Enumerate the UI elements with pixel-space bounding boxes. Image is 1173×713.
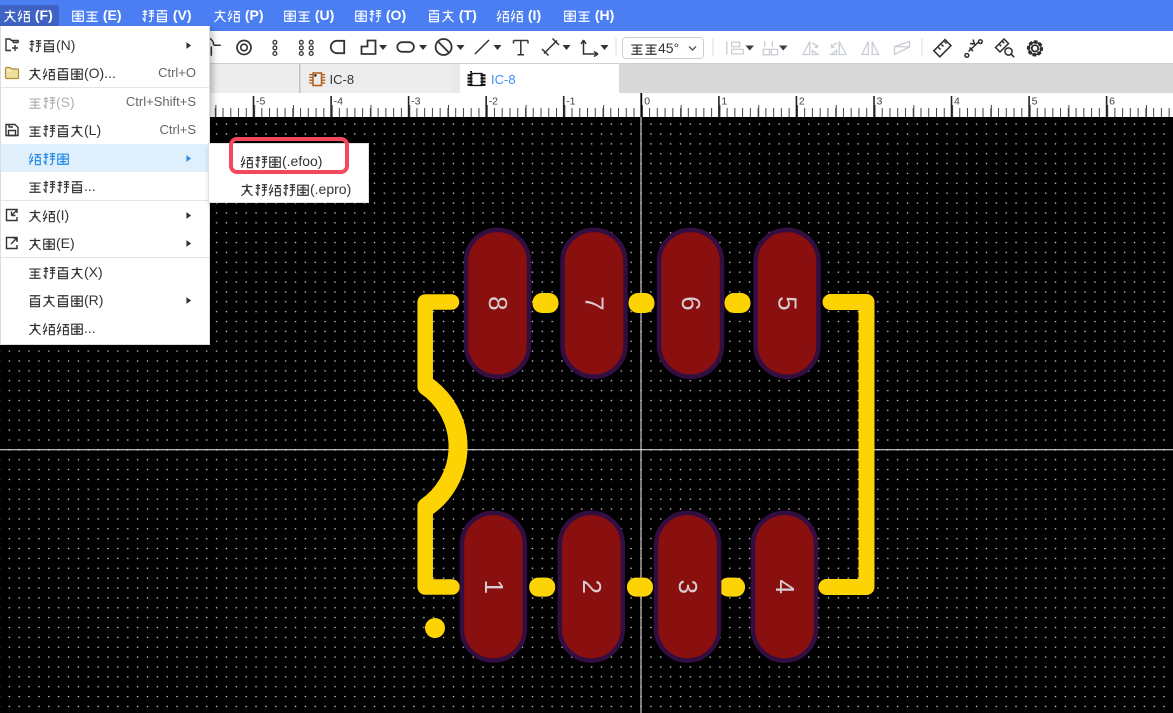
svg-text:-3: -3 [411, 96, 420, 108]
svg-text:-5: -5 [256, 96, 265, 108]
svg-text:5: 5 [1032, 96, 1038, 108]
svg-text:-2: -2 [489, 96, 498, 108]
svg-text:2: 2 [799, 96, 805, 108]
svg-text:0: 0 [644, 96, 650, 108]
svg-text:5: 5 [773, 296, 803, 310]
svg-text:3: 3 [877, 96, 883, 108]
svg-text:6: 6 [1109, 96, 1115, 108]
svg-text:8: 8 [483, 296, 513, 310]
svg-text:6: 6 [676, 296, 706, 310]
svg-text:-1: -1 [566, 96, 575, 108]
svg-text:1: 1 [721, 96, 727, 108]
svg-text:4: 4 [954, 96, 960, 108]
svg-text:3: 3 [673, 579, 703, 593]
svg-text:1: 1 [479, 579, 509, 593]
svg-text:7: 7 [580, 296, 610, 310]
svg-text:2: 2 [577, 579, 607, 593]
svg-text:4: 4 [770, 579, 800, 593]
svg-text:-4: -4 [334, 96, 343, 108]
